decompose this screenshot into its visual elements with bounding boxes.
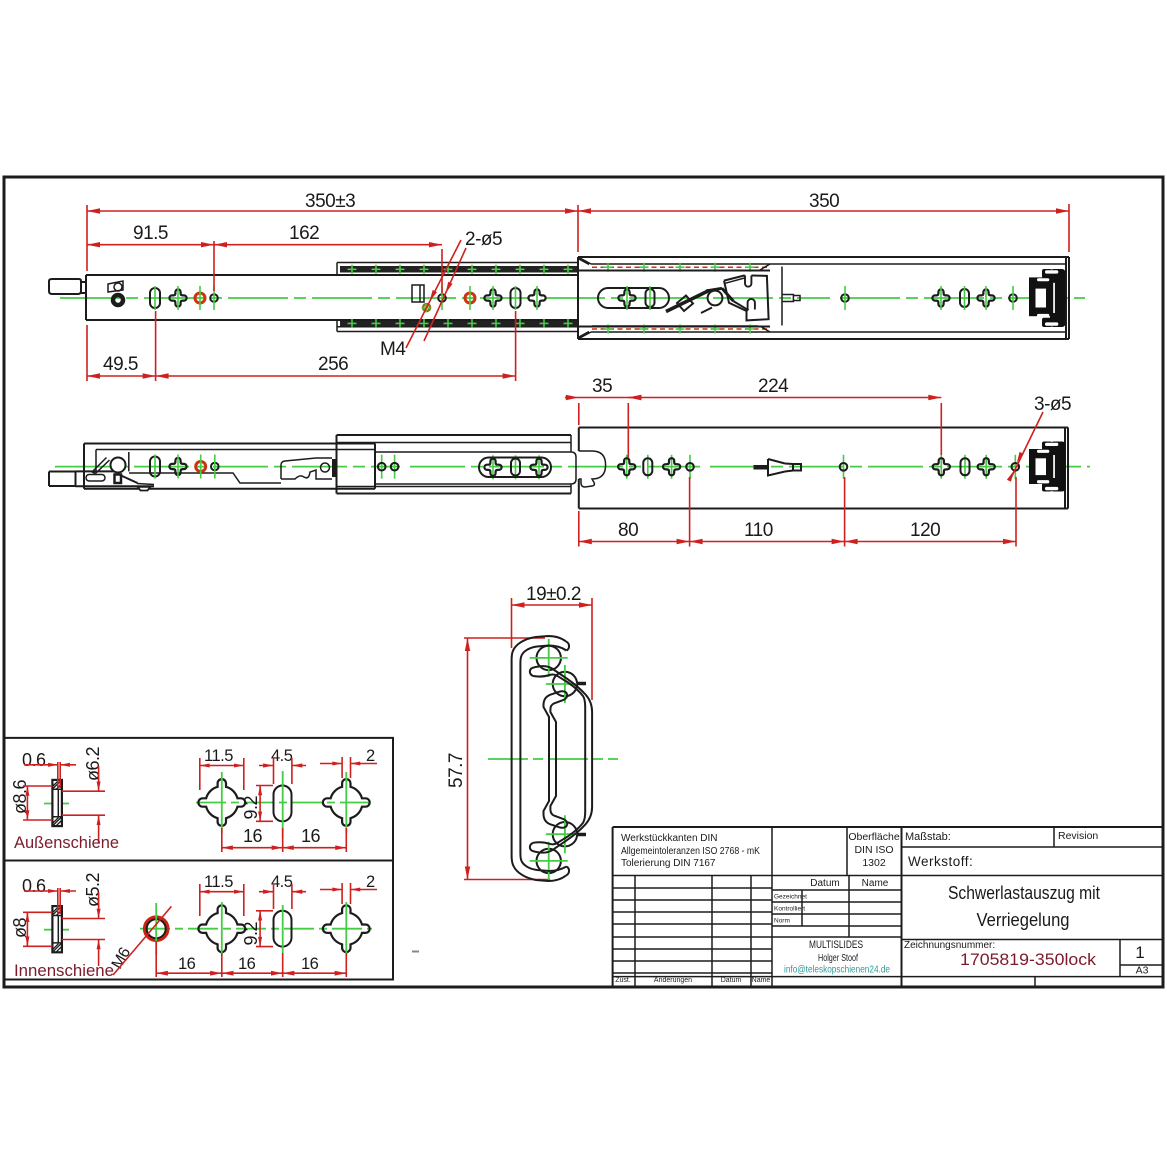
svg-text:16: 16 [178, 955, 196, 973]
svg-text:11.5: 11.5 [204, 873, 233, 891]
svg-text:info@teleskopschienen24.de: info@teleskopschienen24.de [784, 965, 890, 976]
svg-text:Zust.: Zust. [615, 977, 631, 984]
svg-text:MULTISLIDES: MULTISLIDES [809, 939, 863, 951]
svg-text:Verriegelung: Verriegelung [977, 910, 1070, 930]
svg-text:19±0.2: 19±0.2 [526, 584, 581, 605]
svg-text:224: 224 [758, 376, 789, 397]
svg-text:Tolerierung DIN 7167: Tolerierung DIN 7167 [621, 858, 716, 869]
svg-text:Kontrolliert: Kontrolliert [774, 906, 805, 913]
svg-text:120: 120 [910, 520, 940, 541]
svg-text:2-ø5: 2-ø5 [465, 229, 502, 250]
svg-text:350±3: 350±3 [305, 191, 355, 212]
svg-text:1: 1 [1135, 943, 1144, 962]
svg-text:Holger Stoof: Holger Stoof [818, 953, 858, 964]
svg-text:ø6.2: ø6.2 [83, 746, 103, 781]
svg-text:256: 256 [318, 354, 348, 375]
svg-text:0.6: 0.6 [22, 876, 46, 896]
svg-text:16: 16 [243, 826, 263, 846]
svg-text:Maßstab:: Maßstab: [905, 831, 951, 843]
svg-text:Name: Name [862, 878, 889, 889]
svg-text:57.7: 57.7 [446, 753, 467, 788]
svg-text:Datum: Datum [810, 878, 839, 889]
svg-text:35: 35 [592, 376, 612, 397]
svg-text:16: 16 [301, 826, 321, 846]
svg-text:Oberfläche: Oberfläche [848, 831, 900, 843]
svg-text:110: 110 [744, 520, 773, 541]
svg-text:16: 16 [238, 955, 256, 973]
svg-text:91.5: 91.5 [133, 223, 168, 244]
svg-text:Datum: Datum [721, 977, 742, 984]
svg-text:1302: 1302 [862, 857, 886, 869]
svg-text:16: 16 [301, 955, 319, 973]
svg-text:A3: A3 [1136, 965, 1149, 977]
svg-text:2: 2 [366, 747, 375, 765]
svg-text:Werkstoff:: Werkstoff: [908, 854, 973, 869]
svg-text:Außenschiene: Außenschiene [14, 834, 119, 852]
svg-text:M4: M4 [380, 339, 406, 360]
svg-text:11.5: 11.5 [204, 747, 233, 765]
svg-text:0.6: 0.6 [22, 750, 46, 770]
svg-text:162: 162 [289, 223, 319, 244]
svg-text:9.2: 9.2 [241, 795, 261, 819]
svg-text:Innenschiene: Innenschiene [14, 962, 114, 980]
svg-text:1705819-350lock: 1705819-350lock [960, 951, 1097, 969]
svg-text:Allgemeintoleranzen ISO 2768 -: Allgemeintoleranzen ISO 2768 - mK [621, 846, 760, 857]
svg-text:Schwerlastauszug mit: Schwerlastauszug mit [948, 883, 1100, 903]
svg-text:Revision: Revision [1058, 830, 1098, 842]
svg-text:80: 80 [618, 520, 638, 541]
svg-text:Norm: Norm [774, 918, 790, 925]
svg-text:ø5.2: ø5.2 [83, 872, 103, 907]
svg-text:Name: Name [752, 977, 771, 984]
svg-text:DIN ISO: DIN ISO [854, 844, 893, 856]
svg-text:350: 350 [809, 191, 839, 212]
svg-text:Gezeichnet: Gezeichnet [774, 894, 807, 901]
svg-text:Werkstückkanten DIN: Werkstückkanten DIN [621, 833, 718, 844]
svg-text:49.5: 49.5 [103, 354, 138, 375]
svg-text:9.2: 9.2 [241, 921, 261, 945]
svg-text:Zeichnungsnummer:: Zeichnungsnummer: [904, 940, 995, 951]
svg-text:2: 2 [366, 873, 375, 891]
svg-text:3-ø5: 3-ø5 [1034, 394, 1071, 415]
